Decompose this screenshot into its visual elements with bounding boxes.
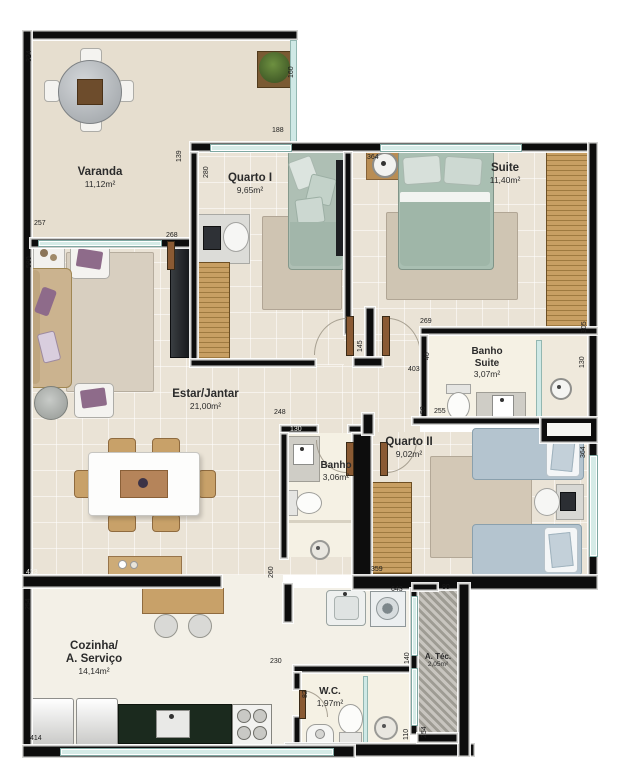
burner-icon — [253, 726, 267, 740]
faucet-icon — [343, 592, 347, 596]
vent-window — [411, 596, 418, 656]
room-area: 11,12m² — [55, 179, 145, 190]
dim-label: 230 — [270, 658, 282, 665]
vent-window — [411, 668, 418, 726]
dim-label: 130 — [290, 426, 302, 433]
wall — [293, 672, 301, 690]
window — [60, 748, 334, 756]
room-area: 3,07m² — [448, 369, 526, 380]
dim-label: 255 — [434, 408, 446, 415]
room-name: Cozinha/ — [44, 640, 144, 653]
wall — [344, 152, 352, 335]
room-label-wc: W.C. 1,97m² — [304, 686, 356, 709]
wall — [293, 665, 412, 673]
room-name: Varanda — [55, 166, 145, 179]
dim-label: 50 — [420, 406, 427, 414]
tv-panel — [336, 160, 343, 256]
window — [380, 144, 522, 152]
dim-label: 305 — [581, 321, 588, 333]
wc-shower-divider — [363, 676, 368, 743]
quarto2-wardrobe — [372, 482, 412, 574]
wall — [293, 716, 301, 745]
computer-icon — [203, 226, 221, 250]
wall — [348, 425, 362, 433]
room-name: A. Serviço — [44, 653, 144, 666]
room-label-varanda: Varanda 11,12m² — [55, 166, 145, 190]
dim-label: 423 — [26, 569, 38, 576]
room-name: A. Téc. — [419, 652, 457, 661]
room-name: Banho — [448, 346, 526, 358]
wall — [280, 433, 288, 559]
wall — [352, 433, 372, 577]
shower-head-center — [557, 385, 561, 389]
dim-label: 248 — [274, 409, 286, 416]
stool — [154, 614, 178, 638]
room-area: 1,97m² — [304, 698, 356, 709]
dim-label: 268 — [166, 232, 178, 239]
room-area: 21,00m² — [148, 401, 263, 412]
desk-chair — [534, 488, 560, 516]
room-area: 9,65m² — [205, 185, 295, 196]
round-side-table — [34, 386, 68, 420]
wall — [412, 417, 554, 425]
dim-label: 359 — [371, 566, 383, 573]
room-area: 14,14m² — [44, 666, 144, 677]
dim-label: 364 — [580, 446, 587, 458]
toilet-icon — [296, 492, 322, 514]
breakfast-bar — [142, 588, 224, 614]
room-area: 3,06m² — [308, 472, 364, 483]
dim-label: 145 — [357, 340, 364, 352]
dim-label: 160 — [288, 66, 295, 78]
room-area: 9,02m² — [376, 449, 442, 460]
shower-divider — [288, 520, 352, 523]
wall — [352, 575, 598, 590]
shower-drain-icon — [310, 540, 330, 560]
door-leaf — [346, 316, 354, 356]
dim-label: 414 — [30, 735, 42, 742]
room-label-quarto2: Quarto II 9,02m² — [376, 436, 442, 460]
stool — [188, 614, 212, 638]
dim-label: 80 — [442, 584, 450, 591]
sink-basin — [315, 729, 325, 739]
door-leaf — [382, 316, 390, 356]
room-label-cozinha: Cozinha/ A. Serviço 14,14m² — [44, 640, 144, 677]
dim-label: 260 — [268, 566, 275, 578]
dining-chair — [108, 514, 136, 532]
room-name: Suite — [455, 162, 555, 175]
vase-icon — [138, 478, 148, 488]
dim-label: 643 — [391, 586, 403, 593]
wall — [458, 583, 470, 757]
bed-pillow — [548, 532, 573, 568]
room-name: Suite — [448, 358, 526, 370]
wall — [22, 30, 32, 758]
table-centerpiece — [77, 79, 103, 105]
bed-pillow — [402, 155, 442, 186]
dim-label: 110 — [403, 729, 410, 740]
wall — [22, 30, 298, 40]
dim-label: 269 — [420, 318, 432, 325]
dim-label: 580 — [26, 256, 33, 268]
dim-label: 82 — [302, 690, 309, 698]
burner-icon — [253, 709, 267, 723]
floor-plan: Varanda 11,12m² Quarto I 9,65m² Suite 11… — [0, 0, 623, 780]
dim-label: 40 — [424, 352, 431, 360]
wall — [190, 359, 316, 367]
faucet-icon — [300, 447, 304, 451]
wall — [420, 327, 598, 335]
room-label-estar: Estar/Jantar 21,00m² — [148, 388, 263, 412]
dining-chair — [152, 514, 180, 532]
burner-icon — [237, 726, 251, 740]
room-label-atec: A. Téc. 2,05m² — [419, 652, 457, 670]
dim-label: 140 — [404, 652, 411, 664]
dim-label: 139 — [176, 150, 183, 162]
decor-bowl — [50, 254, 57, 261]
bed-blanket — [290, 222, 342, 266]
burner-icon — [237, 709, 251, 723]
toilet-icon — [447, 392, 470, 420]
armchair-cushion — [76, 248, 104, 270]
room-name: Banho — [308, 460, 364, 472]
dim-label: 364 — [367, 154, 379, 161]
room-name: W.C. — [304, 686, 356, 698]
appliance — [76, 698, 118, 746]
drain-center — [382, 724, 386, 728]
room-name: Estar/Jantar — [148, 388, 263, 401]
wall — [353, 357, 383, 367]
decor-bowl — [40, 249, 48, 257]
window — [38, 240, 162, 247]
washer-door-icon — [376, 597, 399, 620]
dim-label: 257 — [34, 220, 46, 227]
wall — [283, 583, 293, 623]
dim-label: 188 — [272, 127, 284, 134]
wall — [412, 583, 438, 591]
dim-label: 254 — [25, 598, 32, 610]
bed-duvet — [400, 202, 490, 266]
lamp-center — [381, 161, 386, 166]
faucet-icon — [500, 398, 504, 402]
decor-item — [130, 561, 138, 569]
toilet-tank — [339, 732, 362, 743]
room-label-banho-suite: Banho Suite 3,07m² — [448, 346, 526, 380]
door-leaf — [167, 241, 175, 270]
shower-drain-icon — [374, 716, 398, 740]
varanda-railing — [290, 40, 297, 146]
dim-label: 280 — [203, 166, 210, 178]
dim-label: 324 — [26, 50, 33, 62]
armchair-cushion — [80, 387, 107, 408]
window — [589, 455, 598, 557]
dim-label: 130 — [579, 356, 586, 368]
wall-niche — [547, 423, 591, 436]
shower-area — [540, 335, 588, 417]
dining-chair — [198, 470, 216, 498]
desk-chair — [223, 222, 249, 252]
shower-head-icon — [550, 378, 572, 400]
room-name: Quarto II — [376, 436, 442, 449]
drain-center — [316, 546, 320, 550]
tub-basin — [334, 596, 359, 620]
wall — [22, 575, 222, 588]
room-label-banho: Banho 3,06m² — [308, 460, 364, 483]
faucet-icon — [169, 714, 174, 719]
shower-glass — [536, 340, 542, 419]
dim-label: 403 — [408, 366, 420, 373]
room-name: Quarto I — [205, 172, 295, 185]
dim-label: 254 — [421, 726, 428, 738]
wall — [190, 152, 198, 367]
quarto1-wardrobe — [198, 262, 230, 360]
window — [210, 144, 292, 152]
room-area: 2,05m² — [419, 661, 457, 669]
room-area: 11,40m² — [455, 175, 555, 186]
wall — [362, 413, 374, 435]
room-label-suite: Suite 11,40m² — [455, 162, 555, 186]
computer-icon — [560, 492, 576, 511]
plant-icon — [259, 52, 290, 83]
room-label-quarto1: Quarto I 9,65m² — [205, 172, 295, 196]
decor-item — [118, 560, 127, 569]
